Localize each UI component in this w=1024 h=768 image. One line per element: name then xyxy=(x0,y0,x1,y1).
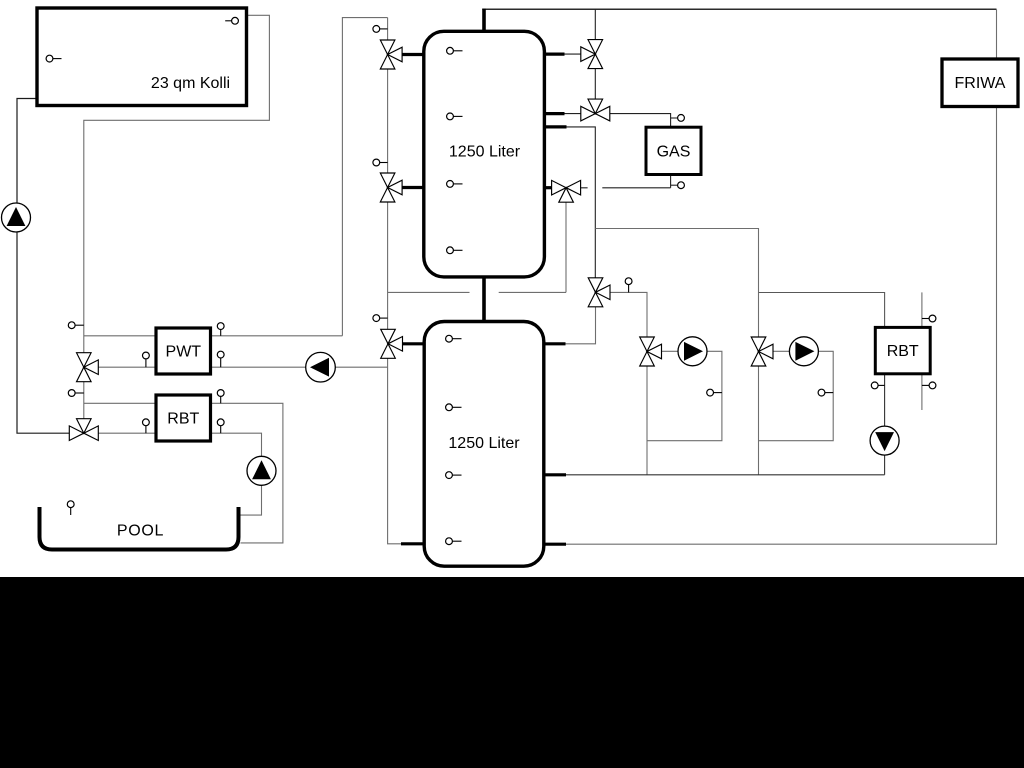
svg-text:POOL: POOL xyxy=(117,523,164,540)
svg-text:23 qm Kolli: 23 qm Kolli xyxy=(151,75,230,92)
svg-text:GAS: GAS xyxy=(657,144,691,161)
svg-text:1250 Liter: 1250 Liter xyxy=(448,435,520,452)
svg-text:PWT: PWT xyxy=(166,344,202,361)
svg-text:FRIWA: FRIWA xyxy=(955,75,1006,92)
svg-text:RBT: RBT xyxy=(167,411,199,428)
svg-text:RBT: RBT xyxy=(887,343,919,360)
svg-text:1250 Liter: 1250 Liter xyxy=(449,144,521,161)
